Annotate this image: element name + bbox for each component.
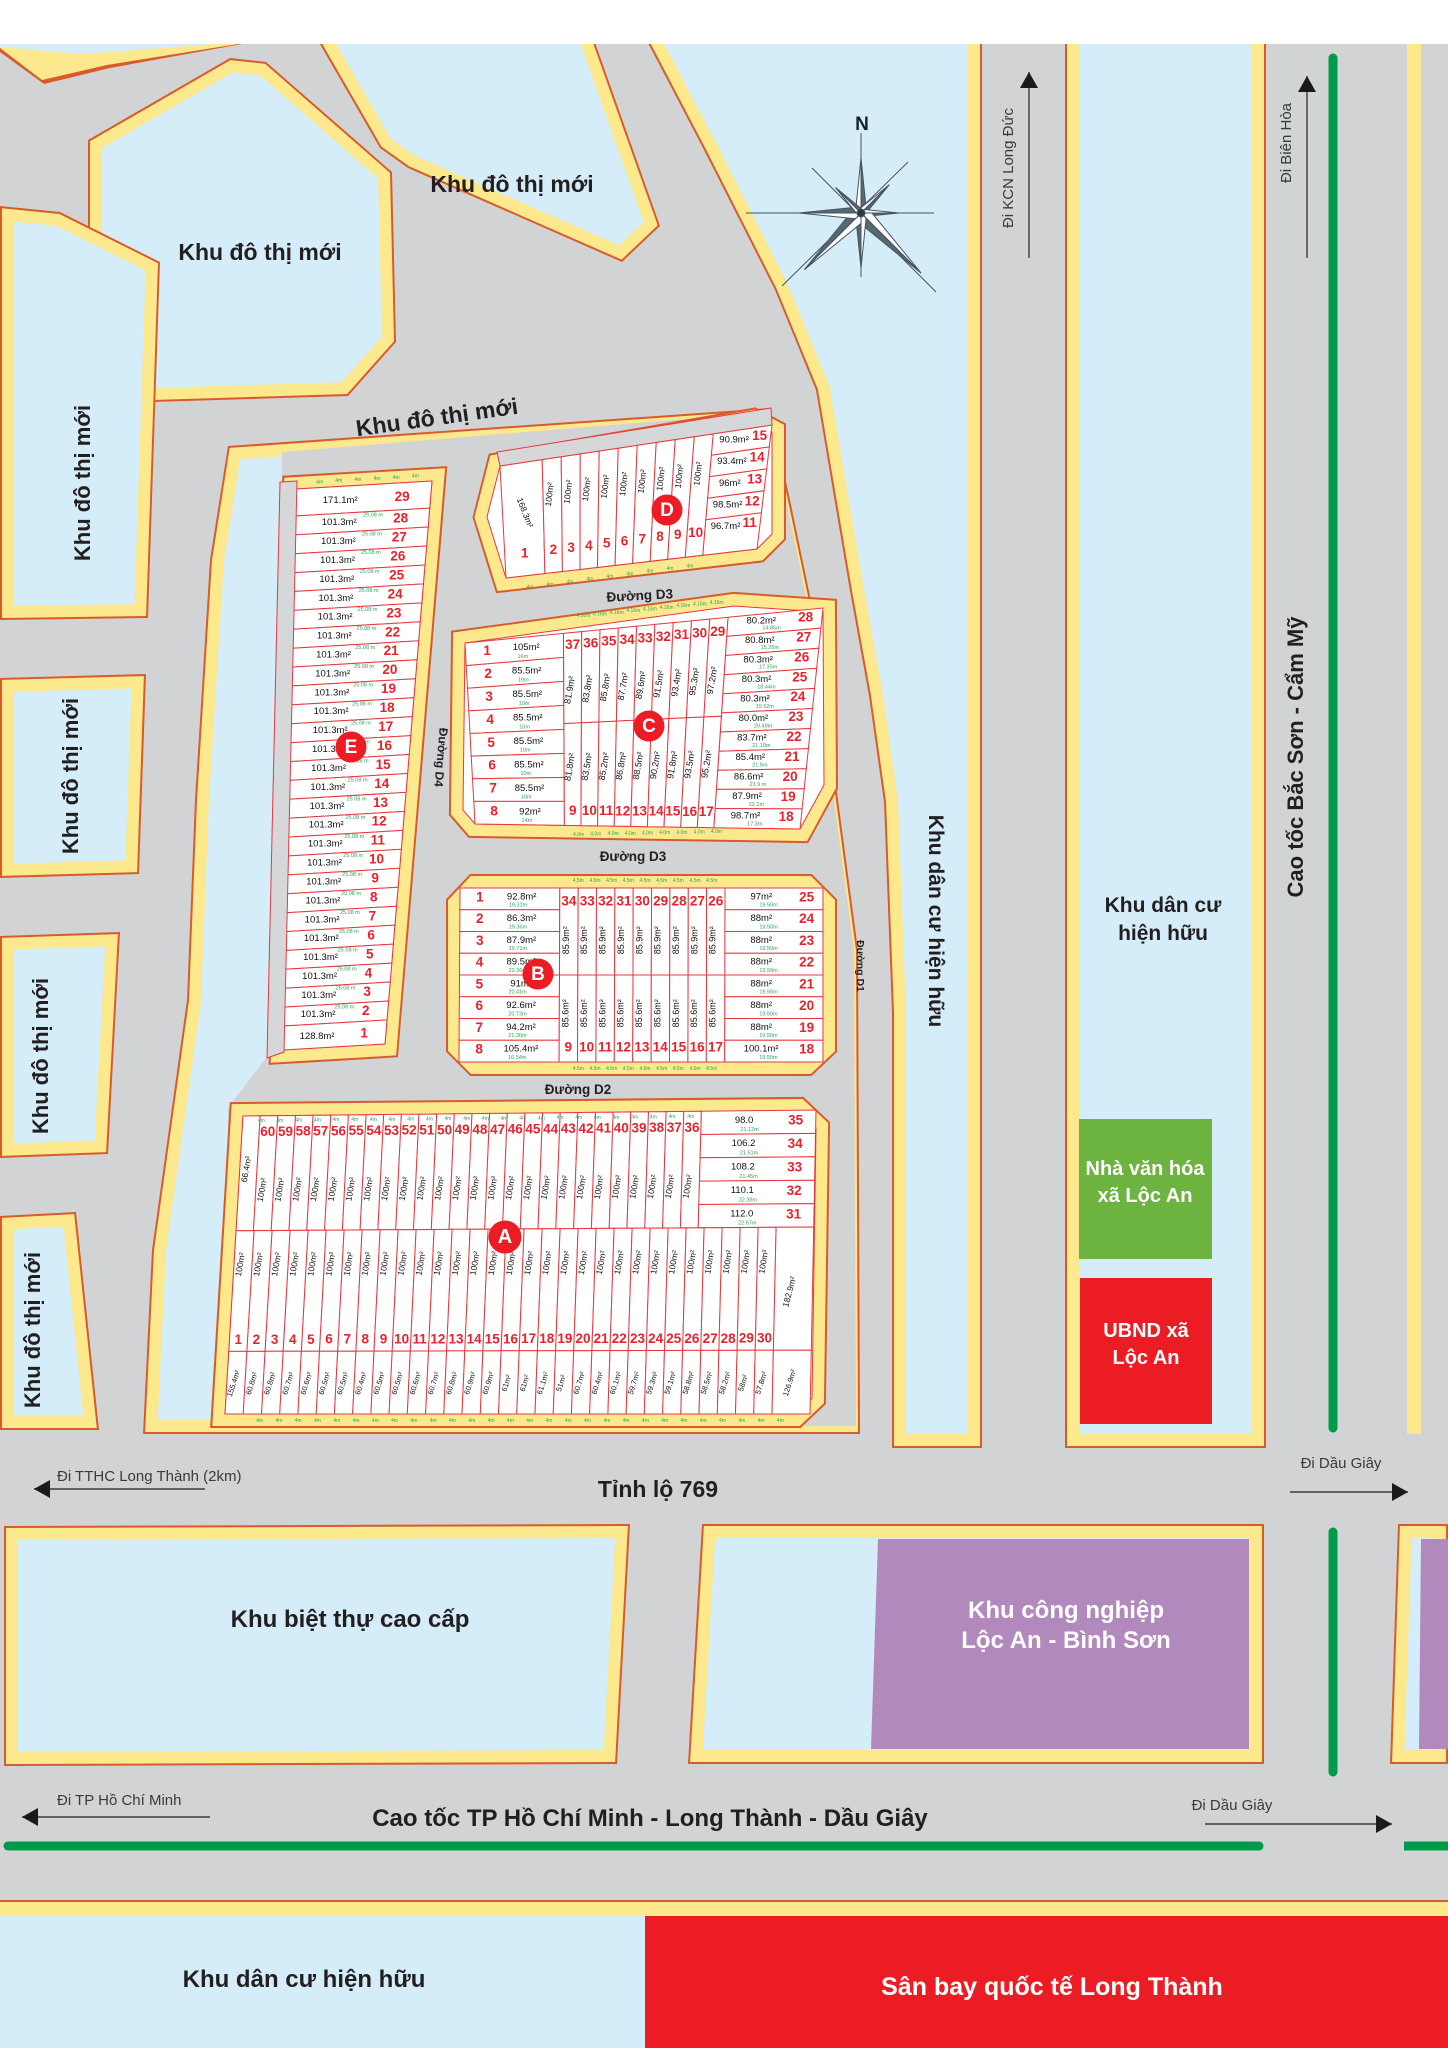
svg-text:Đi KCN Long Đức: Đi KCN Long Đức [1000,107,1017,228]
svg-text:85.9m²: 85.9m² [653,926,663,954]
svg-text:88m²: 88m² [750,935,772,946]
svg-text:85.6m²: 85.6m² [708,999,718,1027]
svg-text:85.9m²: 85.9m² [671,926,681,954]
svg-text:19.50m: 19.50m [759,903,778,909]
svg-text:85.9m²: 85.9m² [616,926,626,954]
svg-text:85.9m²: 85.9m² [561,926,571,954]
svg-text:28: 28 [798,610,814,625]
svg-text:94.2m²: 94.2m² [506,1022,536,1033]
svg-text:85.9m²: 85.9m² [689,926,699,954]
svg-text:17.3m: 17.3m [747,821,763,827]
svg-text:7: 7 [639,531,647,546]
svg-text:25.08 m: 25.08 m [336,986,356,992]
svg-text:85.6m²: 85.6m² [597,999,607,1027]
svg-text:46: 46 [508,1122,524,1137]
svg-text:101.3m²: 101.3m² [320,555,355,566]
svg-text:86.6m²: 86.6m² [734,772,764,783]
svg-text:Khu đô thị mới: Khu đô thị mới [28,978,53,1134]
svg-text:101.3m²: 101.3m² [304,933,339,944]
svg-text:101.3m²: 101.3m² [318,612,353,623]
svg-text:Lộc An - Bình Sơn: Lộc An - Bình Sơn [961,1627,1170,1654]
svg-text:17: 17 [699,804,714,819]
svg-text:22: 22 [612,1331,627,1346]
svg-text:4.5m: 4.5m [656,1066,667,1072]
svg-text:21.45m: 21.45m [739,1174,758,1180]
svg-text:47: 47 [490,1122,505,1137]
svg-text:26: 26 [390,549,406,564]
svg-text:4.5m: 4.5m [706,878,717,884]
svg-text:4.5m: 4.5m [623,878,634,884]
svg-text:4m: 4m [719,1418,726,1424]
svg-text:9: 9 [674,527,682,542]
svg-text:4.0m: 4.0m [676,830,687,836]
svg-text:1: 1 [476,890,484,905]
svg-text:22.39m: 22.39m [739,1197,758,1203]
svg-text:13: 13 [747,472,763,487]
svg-text:101.3m²: 101.3m² [311,763,346,774]
svg-text:31: 31 [616,893,632,908]
svg-text:105.4m²: 105.4m² [503,1044,538,1055]
svg-text:48: 48 [472,1122,488,1137]
svg-text:Khu đô thị mới: Khu đô thị mới [58,698,83,854]
svg-text:33: 33 [787,1160,803,1175]
svg-text:39: 39 [631,1120,646,1135]
svg-text:33: 33 [580,893,596,908]
svg-text:29: 29 [710,624,725,639]
svg-text:4m: 4m [507,1418,514,1424]
svg-text:45: 45 [525,1121,541,1136]
svg-text:57: 57 [313,1124,328,1139]
svg-text:4m: 4m [468,1418,475,1424]
svg-text:4m: 4m [295,1118,302,1124]
svg-text:19.50m: 19.50m [759,1055,778,1061]
svg-text:4m: 4m [374,476,381,482]
svg-text:B: B [531,964,545,985]
svg-text:21.36m: 21.36m [508,1033,527,1039]
svg-text:4m: 4m [391,1418,398,1424]
svg-text:19: 19 [381,681,396,696]
svg-text:3: 3 [363,984,371,999]
svg-text:4: 4 [476,955,484,970]
svg-text:5: 5 [476,977,484,992]
svg-text:4m: 4m [700,1418,707,1424]
svg-text:4.5m: 4.5m [656,878,667,884]
svg-text:7: 7 [343,1332,351,1347]
svg-text:11: 11 [742,515,757,530]
svg-text:20: 20 [382,662,397,677]
svg-text:25.08 m: 25.08 m [359,588,379,594]
svg-text:15.26m: 15.26m [761,645,780,651]
svg-text:101.3m²: 101.3m² [317,631,352,642]
svg-text:7: 7 [475,1020,483,1035]
svg-text:92m²: 92m² [519,806,541,817]
svg-text:19: 19 [781,789,796,804]
svg-text:10m: 10m [519,701,530,707]
svg-text:N: N [855,114,869,135]
svg-text:4m: 4m [275,1418,282,1424]
svg-text:25.08 m: 25.08 m [356,626,376,632]
svg-text:Đi Biên Hòa: Đi Biên Hòa [1278,102,1295,183]
svg-text:87.9m²: 87.9m² [507,935,537,946]
svg-text:4m: 4m [527,585,534,591]
svg-text:30: 30 [635,893,650,908]
svg-text:4m: 4m [314,1418,321,1424]
svg-text:4.16m: 4.16m [693,602,707,608]
svg-text:11: 11 [413,1332,428,1347]
svg-text:C: C [642,716,656,737]
svg-text:28: 28 [721,1331,737,1346]
svg-text:4m: 4m [661,1418,668,1424]
svg-text:4.0m: 4.0m [711,829,722,835]
svg-text:4m: 4m [410,1418,417,1424]
svg-text:85.9m²: 85.9m² [598,926,608,954]
svg-text:21: 21 [384,643,400,658]
svg-text:86.3m²: 86.3m² [507,913,537,924]
svg-text:4.16m: 4.16m [610,610,624,616]
svg-text:14: 14 [653,1040,669,1055]
svg-text:UBND xã: UBND xã [1103,1320,1189,1342]
svg-text:Đường D3: Đường D3 [600,849,667,864]
svg-text:6: 6 [325,1332,333,1347]
svg-text:101.3m²: 101.3m² [314,687,349,698]
svg-text:Đi TTHC Long Thành (2km): Đi TTHC Long Thành (2km) [57,1468,242,1485]
svg-text:25: 25 [389,568,405,583]
svg-text:29: 29 [395,489,410,504]
svg-text:1: 1 [360,1026,368,1041]
svg-text:4m: 4m [584,1418,591,1424]
svg-text:10: 10 [688,525,703,540]
svg-text:4m: 4m [295,1418,302,1424]
svg-text:14.85m: 14.85m [762,626,781,632]
svg-text:2: 2 [476,911,484,926]
svg-text:4m: 4m [519,1116,526,1122]
svg-text:14m: 14m [522,818,533,824]
svg-text:5: 5 [307,1332,315,1347]
svg-text:85.5m²: 85.5m² [513,712,543,723]
svg-text:Cao tốc Bắc Sơn - Cẩm Mỹ: Cao tốc Bắc Sơn - Cẩm Mỹ [1283,616,1308,898]
svg-text:25.08 m: 25.08 m [362,531,382,537]
svg-text:12: 12 [430,1332,445,1347]
svg-text:4m: 4m [333,1117,340,1123]
svg-text:128.8m²: 128.8m² [300,1031,335,1042]
svg-text:85.9m²: 85.9m² [634,926,644,954]
svg-text:10m: 10m [518,677,529,683]
svg-text:31: 31 [674,627,690,642]
svg-text:108.2: 108.2 [731,1162,755,1173]
svg-text:85.5m²: 85.5m² [515,783,545,794]
svg-text:93.4m²: 93.4m² [717,456,747,467]
svg-text:4m: 4m [370,1117,377,1123]
svg-text:4m: 4m [354,477,361,483]
svg-text:14: 14 [374,776,390,791]
svg-text:Đường D2: Đường D2 [545,1082,612,1097]
svg-text:4m: 4m [667,566,674,572]
svg-text:19.36m: 19.36m [509,925,528,931]
svg-text:4m: 4m [623,1418,630,1424]
svg-text:85.5m²: 85.5m² [514,759,544,770]
svg-text:101.3m²: 101.3m² [305,895,340,906]
svg-text:22: 22 [385,624,400,639]
svg-text:101.3m²: 101.3m² [301,990,336,1001]
svg-text:101.3m²: 101.3m² [302,971,337,982]
svg-text:4m: 4m [758,1418,765,1424]
svg-text:4m: 4m [426,1116,433,1122]
svg-text:2: 2 [484,666,492,681]
svg-text:24: 24 [799,911,815,926]
svg-text:26: 26 [684,1331,700,1346]
svg-text:4.0m: 4.0m [625,831,636,837]
svg-text:20: 20 [783,769,798,784]
svg-text:27: 27 [796,630,811,645]
svg-text:49: 49 [455,1122,470,1137]
svg-text:85.5m²: 85.5m² [512,665,542,676]
svg-text:85.6m²: 85.6m² [579,999,589,1027]
svg-text:10: 10 [582,803,597,818]
svg-text:9: 9 [569,803,577,818]
svg-text:101.3m²: 101.3m² [310,801,345,812]
svg-text:100.1m²: 100.1m² [744,1044,779,1055]
svg-text:4.5m: 4.5m [606,878,617,884]
svg-text:5: 5 [487,735,495,750]
svg-text:8: 8 [370,890,378,905]
svg-text:25.08 m: 25.08 m [345,815,365,821]
svg-text:16m: 16m [517,654,528,660]
svg-text:35: 35 [788,1113,804,1128]
svg-text:4.16m: 4.16m [576,613,590,619]
svg-text:2: 2 [362,1003,370,1018]
svg-text:19.52m: 19.52m [756,704,775,710]
svg-text:23: 23 [386,605,402,620]
svg-text:20.41m: 20.41m [508,990,527,996]
svg-text:7: 7 [489,781,497,796]
svg-text:4m: 4m [393,475,400,481]
svg-text:Tỉnh lộ 769: Tỉnh lộ 769 [598,1476,718,1502]
svg-text:21.9 m: 21.9 m [750,782,767,788]
svg-text:4m: 4m [538,1115,545,1121]
svg-text:4.16m: 4.16m [626,608,640,614]
svg-text:4: 4 [585,538,593,553]
svg-text:15: 15 [752,428,768,443]
svg-text:10: 10 [394,1332,409,1347]
svg-text:29: 29 [653,893,668,908]
svg-text:25.08 m: 25.08 m [355,645,375,651]
svg-text:4.5m: 4.5m [639,878,650,884]
svg-text:4.5m: 4.5m [689,878,700,884]
svg-text:4.0m: 4.0m [608,831,619,837]
svg-text:Khu công nghiệp: Khu công nghiệp [968,1597,1164,1624]
svg-text:15: 15 [485,1331,501,1346]
svg-text:17: 17 [378,719,393,734]
svg-text:4m: 4m [526,1418,533,1424]
svg-text:14: 14 [750,450,766,465]
svg-text:85.6m²: 85.6m² [671,999,681,1027]
svg-text:83.7m²: 83.7m² [737,733,767,744]
svg-text:4.5m: 4.5m [673,878,684,884]
svg-text:17.35m: 17.35m [759,665,778,671]
svg-text:4.0m: 4.0m [573,832,584,838]
svg-text:10m: 10m [520,771,531,777]
svg-text:85.6m²: 85.6m² [561,999,571,1027]
svg-text:4.0m: 4.0m [659,830,670,836]
svg-text:Khu dân cư hiện hữu: Khu dân cư hiện hữu [924,815,947,1027]
svg-text:Nhà văn hóa: Nhà văn hóa [1086,1158,1206,1180]
svg-text:88m²: 88m² [750,957,772,968]
svg-text:4m: 4m [738,1418,745,1424]
svg-text:25.08 m: 25.08 m [342,872,362,878]
svg-text:Đường D1: Đường D1 [854,940,866,992]
svg-text:101.3m²: 101.3m² [315,668,350,679]
svg-text:92.6m²: 92.6m² [506,1000,536,1011]
svg-text:21.5m: 21.5m [752,763,768,769]
svg-text:85.6m²: 85.6m² [634,999,644,1027]
svg-text:25.08 m: 25.08 m [340,910,360,916]
svg-text:16: 16 [682,804,698,819]
svg-text:Đi TP Hồ Chí Minh: Đi TP Hồ Chí Minh [57,1792,182,1809]
svg-text:9: 9 [380,1332,388,1347]
svg-text:105m²: 105m² [513,642,540,653]
svg-text:18: 18 [779,809,795,824]
svg-text:Khu biệt thự cao cấp: Khu biệt thự cao cấp [231,1606,470,1633]
svg-text:40: 40 [614,1121,629,1136]
svg-text:4m: 4m [256,1418,263,1424]
svg-text:23: 23 [630,1331,646,1346]
svg-text:4m: 4m [575,1115,582,1121]
svg-text:19: 19 [557,1331,572,1346]
svg-text:97m²: 97m² [750,891,772,902]
svg-text:25.08 m: 25.08 m [347,796,367,802]
svg-text:4.5m: 4.5m [639,1066,650,1072]
svg-text:13: 13 [632,804,648,819]
svg-text:34: 34 [788,1136,804,1151]
svg-text:80.0m²: 80.0m² [739,713,769,724]
svg-text:2: 2 [550,542,558,557]
svg-text:27: 27 [392,530,407,545]
svg-text:44: 44 [543,1121,559,1136]
svg-text:4.16m: 4.16m [660,605,674,611]
svg-text:19: 19 [799,1020,814,1035]
svg-text:3: 3 [485,689,493,704]
svg-text:Khu đô thị mới: Khu đô thị mới [178,239,341,265]
svg-text:25.08 m: 25.08 m [339,929,359,935]
svg-text:4m: 4m [545,1418,552,1424]
svg-text:96.7m²: 96.7m² [711,521,741,532]
svg-text:4.5m: 4.5m [573,878,584,884]
svg-text:13: 13 [634,1040,650,1055]
svg-text:4m: 4m [335,478,342,484]
svg-text:4m: 4m [647,569,654,575]
svg-text:28: 28 [393,511,409,526]
svg-text:4.5m: 4.5m [689,1066,700,1072]
svg-text:32: 32 [656,629,671,644]
svg-text:15: 15 [376,757,392,772]
svg-text:16.54m: 16.54m [508,1055,527,1061]
svg-text:4m: 4m [351,1117,358,1123]
svg-text:101.3m²: 101.3m² [316,650,351,661]
svg-text:4m: 4m [333,1418,340,1424]
svg-text:19.50m: 19.50m [759,946,778,952]
svg-text:4.5m: 4.5m [589,1066,600,1072]
svg-text:55: 55 [349,1123,365,1138]
svg-text:19.50m: 19.50m [759,990,778,996]
svg-text:4m: 4m [594,1115,601,1121]
svg-text:101.3m²: 101.3m² [305,914,340,925]
svg-text:88m²: 88m² [750,913,772,924]
svg-text:18: 18 [539,1331,555,1346]
svg-text:25.08 m: 25.08 m [352,702,372,708]
svg-text:8: 8 [475,1042,483,1057]
svg-text:171.1m²: 171.1m² [323,495,358,506]
svg-text:27: 27 [703,1331,718,1346]
svg-text:85.5m²: 85.5m² [514,736,544,747]
svg-text:12: 12 [372,814,387,829]
svg-text:22: 22 [799,955,814,970]
svg-text:25.08 m: 25.08 m [348,777,368,783]
svg-text:4.5m: 4.5m [573,1066,584,1072]
svg-text:56: 56 [331,1123,347,1138]
svg-text:19.50m: 19.50m [759,1033,778,1039]
svg-text:24: 24 [388,586,404,601]
svg-text:Cao tốc TP Hồ Chí Minh - Long: Cao tốc TP Hồ Chí Minh - Long Thành - Dầ… [372,1805,928,1832]
svg-text:25.08 m: 25.08 m [341,891,361,897]
svg-text:101.3m²: 101.3m² [307,858,342,869]
svg-text:D: D [660,500,674,521]
svg-text:23: 23 [799,933,815,948]
svg-text:29: 29 [739,1331,754,1346]
svg-text:32: 32 [787,1183,802,1198]
svg-text:4m: 4m [607,574,614,580]
svg-text:101.3m²: 101.3m² [308,839,343,850]
svg-text:25.08 m: 25.08 m [361,550,381,556]
svg-text:4.16m: 4.16m [593,612,607,618]
svg-text:4.16m: 4.16m [676,603,690,609]
svg-text:85.6m²: 85.6m² [652,999,662,1027]
svg-text:25: 25 [799,890,815,905]
svg-text:4m: 4m [430,1418,437,1424]
svg-text:25.08 m: 25.08 m [338,948,358,954]
svg-text:85.9m²: 85.9m² [579,926,589,954]
svg-text:4m: 4m [627,571,634,577]
svg-text:101.3m²: 101.3m² [301,1009,336,1020]
svg-text:4.5m: 4.5m [623,1066,634,1072]
svg-text:19.50m: 19.50m [759,968,778,974]
svg-text:4.0m: 4.0m [694,830,705,836]
svg-text:4m: 4m [567,579,574,585]
svg-text:38: 38 [649,1120,665,1135]
svg-text:15: 15 [665,804,681,819]
svg-text:32: 32 [598,893,613,908]
svg-text:20.49m: 20.49m [754,724,773,730]
svg-text:16: 16 [503,1331,519,1346]
svg-text:101.3m²: 101.3m² [321,536,356,547]
svg-text:34: 34 [620,632,636,647]
svg-text:10: 10 [369,852,384,867]
svg-text:21.51m: 21.51m [740,1151,759,1157]
svg-text:4m: 4m [482,1116,489,1122]
svg-text:Đi Dầu Giây: Đi Dầu Giây [1192,1797,1273,1814]
svg-text:25.08 m: 25.08 m [360,569,380,575]
svg-text:11: 11 [371,833,386,848]
svg-text:59: 59 [278,1124,293,1139]
svg-text:85.6m²: 85.6m² [616,999,626,1027]
svg-text:4m: 4m [316,479,323,485]
svg-text:xã Lộc An: xã Lộc An [1098,1185,1193,1207]
svg-text:4m: 4m [557,1115,564,1121]
svg-text:60: 60 [260,1124,275,1139]
svg-text:33: 33 [638,630,654,645]
svg-text:41: 41 [596,1121,612,1136]
svg-text:88m²: 88m² [750,1022,772,1033]
svg-text:36: 36 [684,1120,700,1135]
